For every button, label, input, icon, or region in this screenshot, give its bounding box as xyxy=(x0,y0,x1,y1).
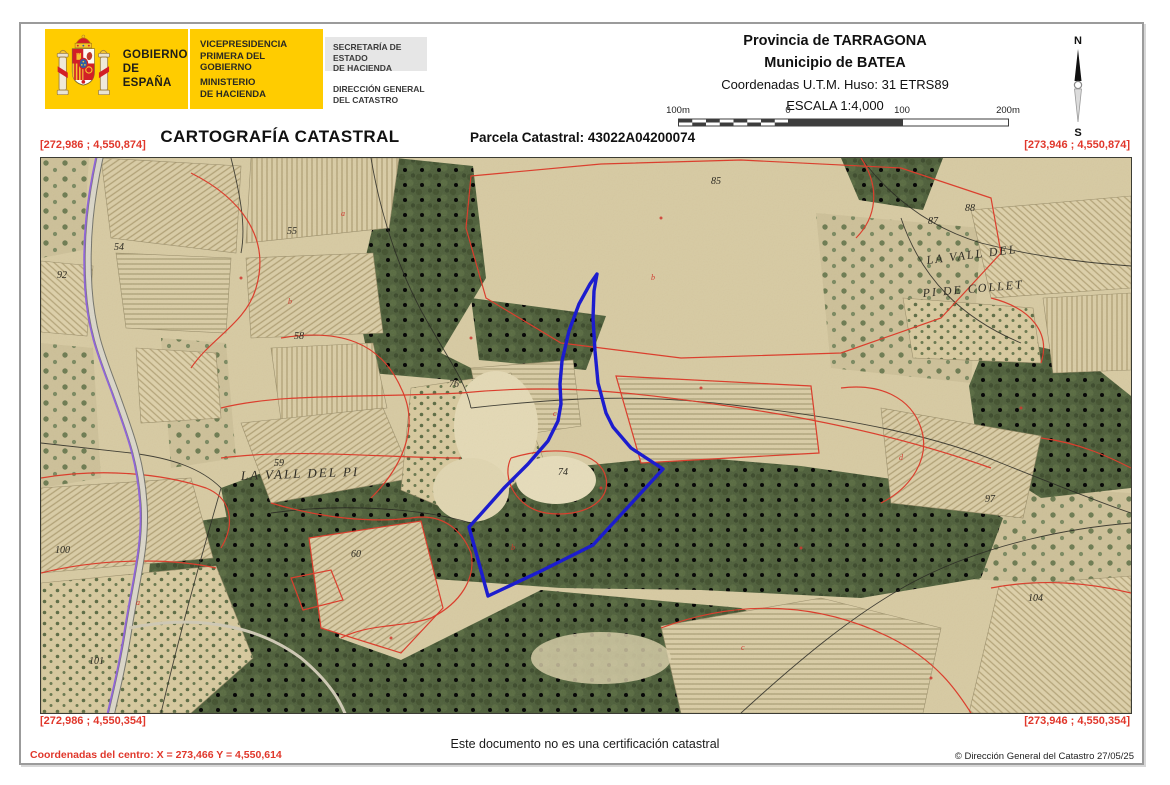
scale-bar-graphic xyxy=(678,118,1010,128)
vicepresidencia-label: VICEPRESIDENCIA PRIMERA DEL GOBIERNO xyxy=(200,39,315,74)
gobierno-logo-block: GOBIERNO DE ESPAÑA xyxy=(45,29,188,109)
center-coordinates-text: Coordenadas del centro: X = 273,466 Y = … xyxy=(30,749,282,761)
spain-coat-of-arms-icon xyxy=(54,34,113,104)
corner-coordinate-top-left: [272,986 ; 4,550,874] xyxy=(40,139,146,151)
gobierno-label: GOBIERNO DE ESPAÑA xyxy=(123,48,188,90)
cadastral-map-canvas: abbcacdb 5492555876597485888710010160971… xyxy=(40,157,1132,714)
photo-grain-overlay xyxy=(41,158,1131,713)
ministry-logo-block: VICEPRESIDENCIA PRIMERA DEL GOBIERNO MIN… xyxy=(190,29,323,109)
copyright-text: © Dirección General del Catastro 27/05/2… xyxy=(955,751,1134,762)
compass-north-label: N xyxy=(1074,35,1082,47)
scale-tick-label: 0 xyxy=(785,105,790,116)
document-title: CARTOGRAFÍA CATASTRAL xyxy=(150,127,410,147)
ministerio-label: MINISTERIO DE HACIENDA xyxy=(200,77,315,100)
scale-bar: 100m 0 100 200m xyxy=(678,105,1008,129)
corner-coordinate-bottom-right: [273,946 ; 4,550,354] xyxy=(1024,715,1130,727)
municipio-label: Municipio de BATEA xyxy=(625,52,1045,74)
north-arrow: N S xyxy=(1060,32,1096,142)
parcel-reference: Parcela Catastral: 43022A04200074 xyxy=(470,130,695,145)
map-header-info: Provincia de TARRAGONA Municipio de BATE… xyxy=(625,30,1045,116)
compass-south-label: S xyxy=(1074,127,1081,139)
scale-tick-label: 100 xyxy=(894,105,910,116)
corner-coordinate-bottom-left: [272,986 ; 4,550,354] xyxy=(40,715,146,727)
corner-coordinate-top-right: [273,946 ; 4,550,874] xyxy=(1024,139,1130,151)
provincia-label: Provincia de TARRAGONA xyxy=(625,30,1045,52)
scale-tick-label: 100m xyxy=(666,105,690,116)
secretaria-estado-label: SECRETARÍA DE ESTADO DE HACIENDA xyxy=(325,37,427,71)
utm-label: Coordenadas U.T.M. Huso: 31 ETRS89 xyxy=(625,74,1045,95)
scale-tick-label: 200m xyxy=(996,105,1020,116)
direccion-general-label: DIRECCIÓN GENERAL DEL CATASTRO xyxy=(333,84,425,105)
